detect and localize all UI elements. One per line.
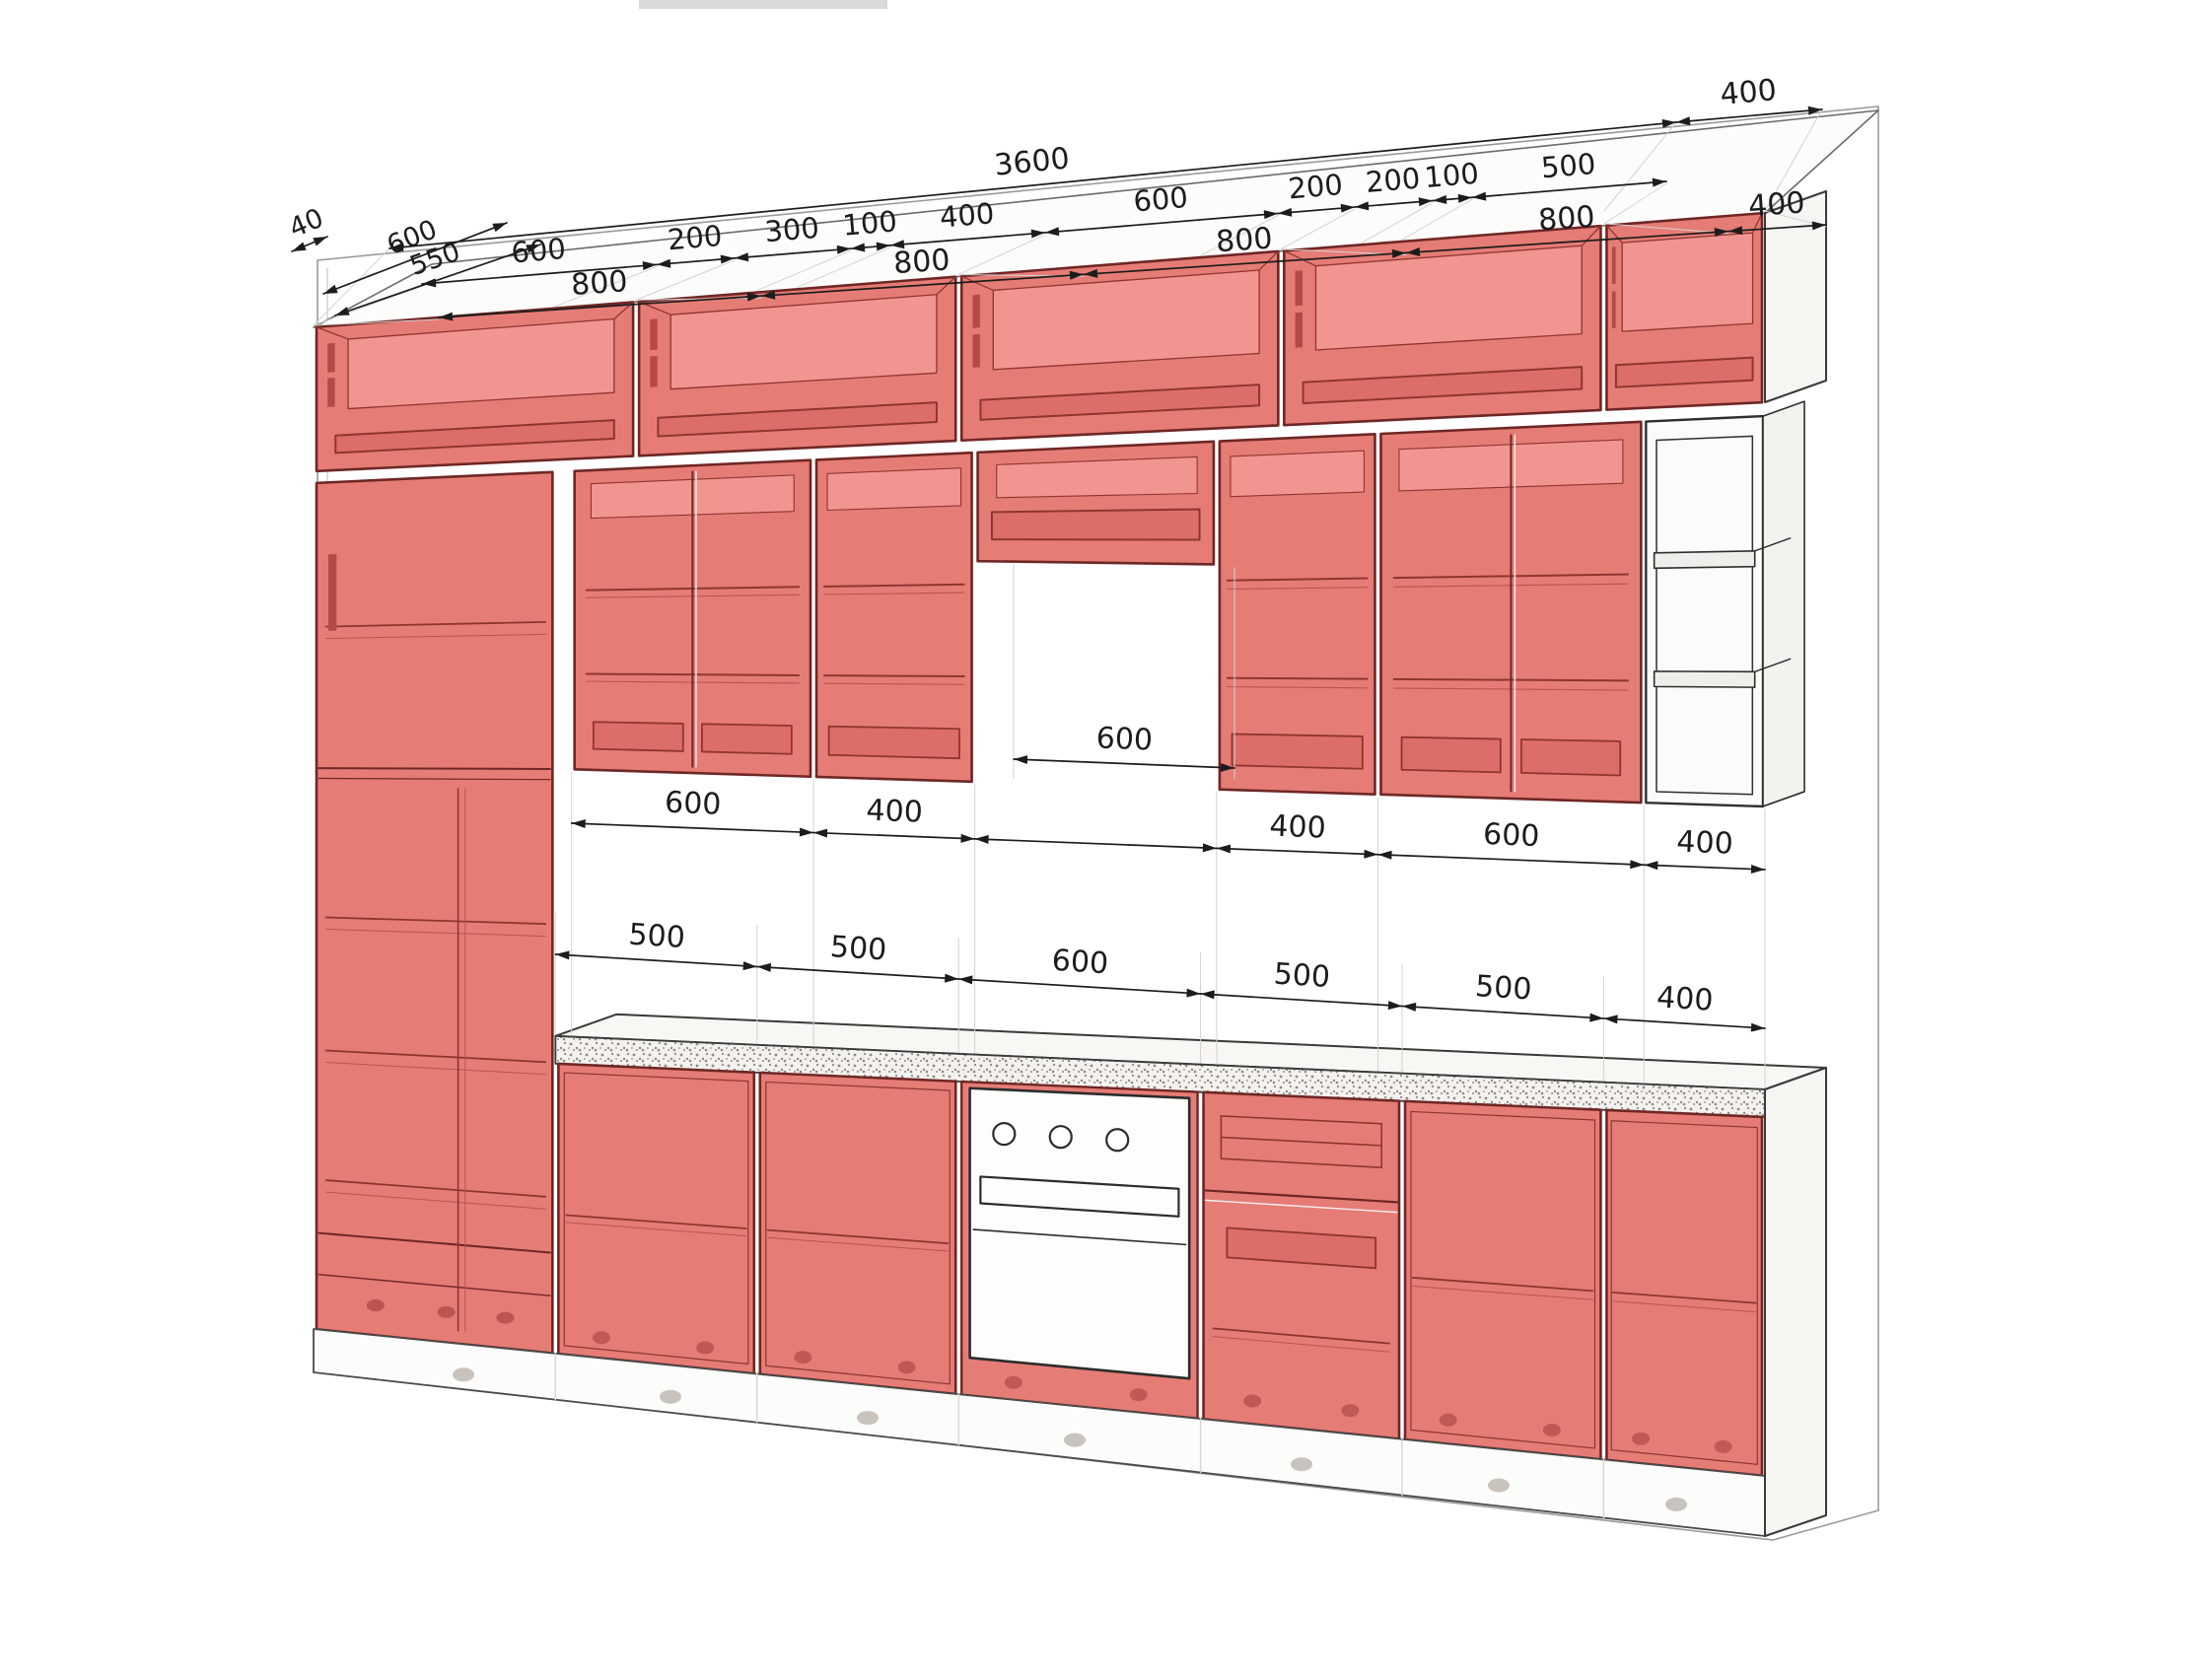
top-cabinet-5 [1606,213,1762,409]
plinth-foot [1291,1457,1312,1471]
tall-handle [328,554,336,631]
base-cabinet-front [558,1064,753,1373]
cabinet-foot [367,1299,385,1311]
cabinet-foot [1715,1440,1732,1453]
shelf-line [824,675,964,676]
door-handle-recess [829,727,959,758]
dim-label: 800 [570,264,628,303]
cabinet-foot [496,1312,514,1324]
door-handle-recess [702,724,792,753]
hinge-hardware [1296,270,1303,306]
hood-top-cabinet [978,442,1214,565]
dim-label: 100 [1423,157,1480,194]
cabinet-foot [794,1351,811,1364]
dim-label: 600 [664,786,722,822]
base-cabinet-front [1405,1101,1600,1459]
cad-canvas: 3600400600200300100400600200200100500800… [0,0,2185,1680]
wall-cabinet-600-left [575,460,811,777]
cabinet-foot [1005,1376,1022,1389]
plinth-foot [453,1367,474,1381]
dim-label: 400 [1656,980,1714,1017]
cabinet-foot [593,1331,610,1344]
shelf-line [1228,678,1368,679]
hinge-hardware [1612,246,1616,284]
hinge-hardware [327,378,334,407]
dim-label: 500 [1540,147,1597,184]
door-handle-recess [1233,734,1363,768]
cabinet-foot [1632,1433,1650,1445]
base-right-side-panel [1765,1068,1826,1536]
tall-cabinet-front [317,472,552,1354]
cabinet-foot [1440,1414,1457,1427]
dim-label: 200 [1287,168,1344,205]
dim-label: 300 [763,211,820,248]
dim-label: 600 [1051,944,1109,981]
hinge-hardware [650,356,657,387]
hinge-hardware [1296,313,1303,348]
base-cabinet-500-1 [558,1064,753,1373]
dim-label: 400 [866,794,924,830]
plinth-foot [660,1390,681,1404]
dim-label: 400 [1719,73,1778,112]
wall-cabinet-400-right [1220,434,1375,794]
top-cabinet-4 [1284,226,1600,425]
hinge-hardware [650,318,657,350]
cabinet-foot [696,1342,714,1355]
dim-label: 400 [1676,825,1734,862]
shelf-unit-side [1763,401,1804,806]
dim-label: 800 [1537,200,1595,239]
shelf-unit-front [1646,416,1763,806]
hinge-hardware [1612,291,1616,328]
top-cabinet-1 [317,302,633,470]
hinge-hardware [972,295,979,328]
dim-label: 600 [1132,180,1189,218]
cabinet-foot [1341,1404,1359,1417]
top-cabinet-interior [1622,233,1752,331]
dim-label: 500 [1474,969,1532,1007]
open-shelf-unit [1646,401,1804,806]
plinth-foot [1665,1498,1687,1511]
oven-housing [961,1082,1197,1419]
door-handle-recess [1402,737,1501,773]
hood-cabinet-interior [997,456,1197,497]
dim-label: 100 [841,204,898,242]
cabinet-foot [1243,1394,1261,1407]
tall-section-line [318,768,550,769]
top-cabinet-2 [639,277,955,456]
shelf-board [1655,671,1755,687]
dim-label: 500 [1273,957,1331,995]
hinge-hardware [972,334,979,368]
cabinet-foot [1130,1388,1148,1401]
kitchen-elevation-drawing: 3600400600200300100400600200200100500800… [0,0,2185,1680]
flap-handle-recess [992,510,1200,540]
wall-cabinet-400-left [816,453,972,782]
oven-knob [1050,1126,1072,1148]
top-artifact [639,0,887,9]
dim-label: 500 [829,930,887,967]
door-handle-recess [1521,739,1620,776]
base-cabinet-front [760,1073,955,1394]
dim-label: 500 [627,918,685,955]
dim-label: 600 [1095,721,1154,757]
oven-knob [1106,1129,1128,1151]
dim-label: 400 [939,196,996,234]
hinge-hardware [327,343,334,373]
wall-cabinet-interior [827,468,960,511]
door-handle-recess [594,722,683,751]
dim-label: 600 [1482,817,1540,854]
tall-cabinet [317,472,552,1354]
plinth-foot [1488,1479,1510,1493]
dim-label: 800 [1215,222,1273,260]
wall-cabinet-600-right [1380,422,1641,803]
dim-label: 200 [667,219,724,256]
base-cabinet-400-right [1606,1110,1762,1476]
cabinet-foot [1543,1424,1561,1436]
dim-label: 400 [1747,185,1805,224]
dim-label: 3600 [993,141,1071,182]
wall-cabinet-interior [1231,451,1364,496]
dim-label: 800 [892,243,951,281]
dim-label: 600 [510,232,567,269]
plinth-foot [857,1411,879,1425]
dim-label: 400 [1269,809,1327,846]
base-cabinet-500-2 [760,1073,955,1394]
base-cabinet-500-3 [1405,1101,1600,1459]
dim-label: 200 [1365,162,1422,199]
drawer-unit [1204,1092,1399,1439]
plinth-foot [1064,1434,1086,1447]
cabinet-foot [438,1306,456,1318]
oven-knob [993,1123,1015,1145]
cabinet-foot [898,1361,916,1373]
shelf-board [1655,551,1755,568]
